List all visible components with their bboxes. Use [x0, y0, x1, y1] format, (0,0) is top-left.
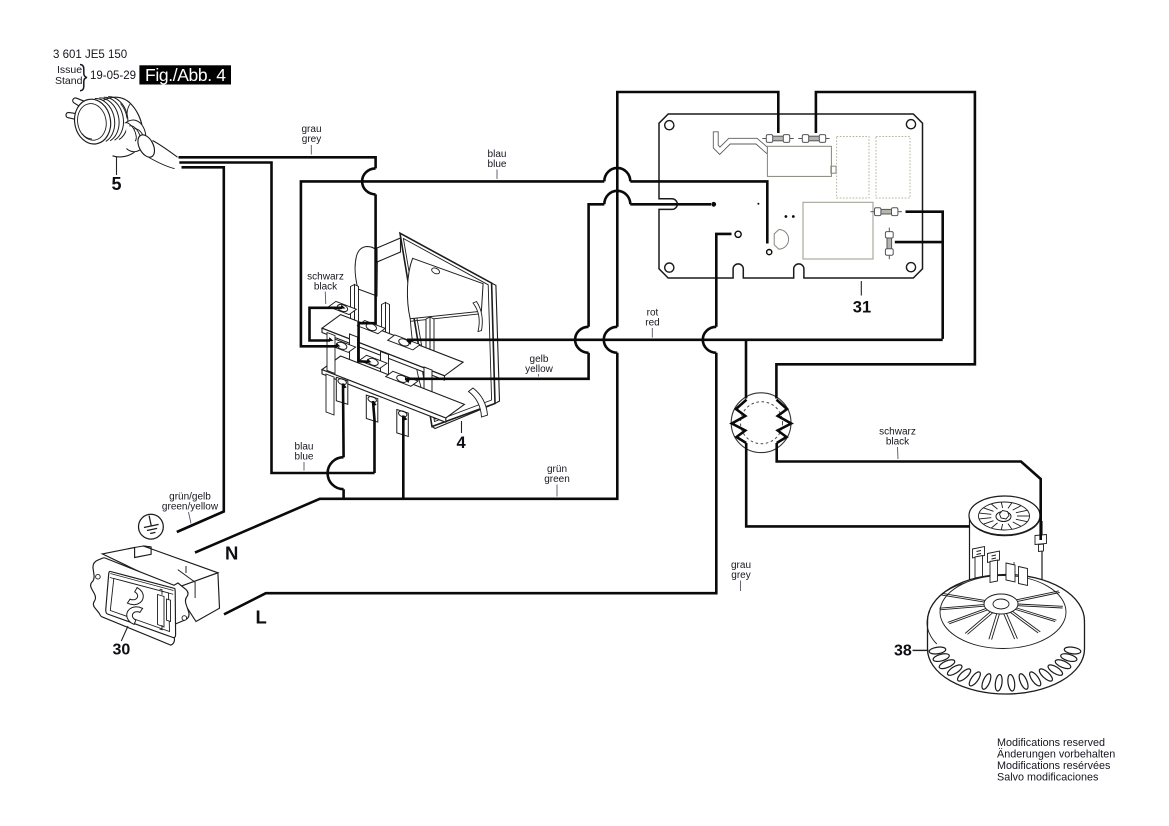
- svg-text:4: 4: [457, 434, 467, 452]
- svg-text:5: 5: [112, 174, 122, 194]
- svg-text:blue: blue: [488, 159, 507, 170]
- svg-text:yellow: yellow: [525, 364, 554, 375]
- svg-text:black: black: [886, 437, 910, 448]
- svg-text:black: black: [314, 282, 338, 293]
- svg-text:Modifications reserved: Modifications reserved: [997, 737, 1105, 749]
- svg-text:red: red: [645, 318, 659, 329]
- svg-text:Fig./Abb. 4: Fig./Abb. 4: [145, 65, 226, 85]
- svg-text:Salvo modificaciones: Salvo modificaciones: [997, 772, 1099, 784]
- svg-text:Modifications resérvées: Modifications resérvées: [997, 760, 1111, 772]
- svg-text:Stand: Stand: [55, 75, 83, 87]
- svg-text:N: N: [225, 543, 238, 564]
- svg-text:green: green: [544, 474, 570, 485]
- svg-text:31: 31: [853, 299, 871, 317]
- svg-text:38: 38: [894, 643, 912, 660]
- svg-text:grey: grey: [302, 134, 321, 145]
- svg-text:30: 30: [113, 642, 131, 659]
- svg-text:3 601 JE5 150: 3 601 JE5 150: [53, 49, 127, 61]
- svg-text:19-05-29: 19-05-29: [90, 70, 136, 82]
- svg-text:blue: blue: [295, 452, 314, 463]
- svg-text:L: L: [256, 607, 267, 628]
- svg-text:green/yellow: green/yellow: [162, 502, 219, 513]
- svg-text:grey: grey: [731, 570, 750, 581]
- svg-text:Änderungen vorbehalten: Änderungen vorbehalten: [997, 749, 1115, 761]
